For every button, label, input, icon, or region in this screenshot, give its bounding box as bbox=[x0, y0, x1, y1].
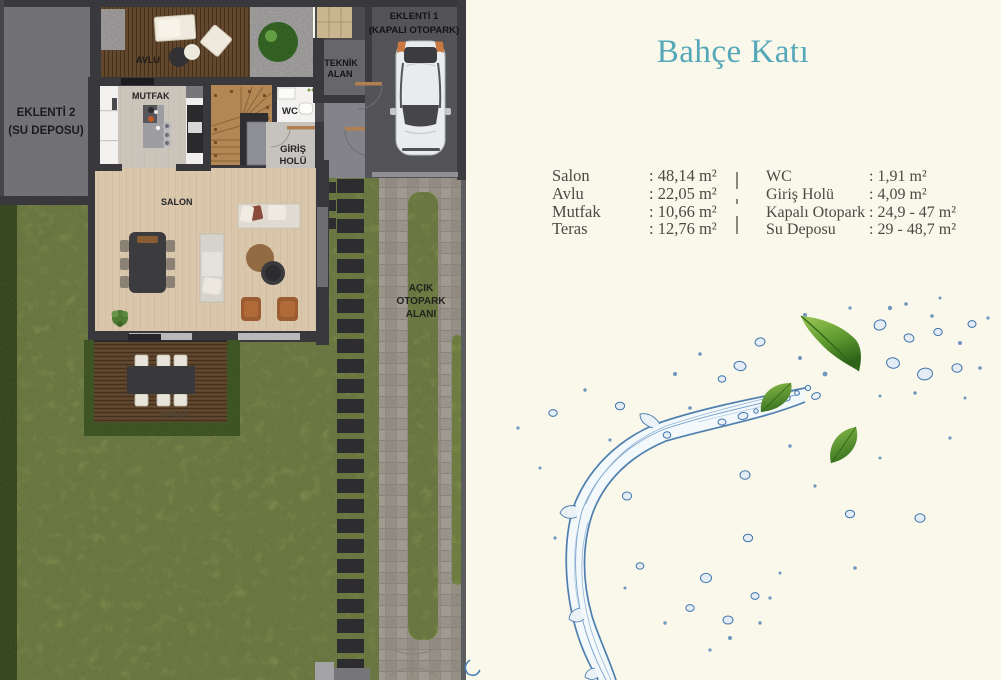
svg-text:ALAN: ALAN bbox=[328, 69, 353, 79]
svg-text:OTOPARK: OTOPARK bbox=[396, 296, 446, 307]
svg-text:EKLENTİ 2: EKLENTİ 2 bbox=[17, 106, 76, 119]
svg-text:AVLU: AVLU bbox=[136, 55, 160, 65]
svg-text:(SU DEPOSU): (SU DEPOSU) bbox=[8, 125, 84, 137]
svg-text:GİRİŞ: GİRİŞ bbox=[280, 144, 306, 155]
svg-text:(KAPALI OTOPARK): (KAPALI OTOPARK) bbox=[369, 25, 459, 36]
svg-text:SALON: SALON bbox=[161, 197, 193, 207]
svg-text:TERAS: TERAS bbox=[161, 411, 189, 420]
svg-text:TEKNİK: TEKNİK bbox=[324, 58, 358, 68]
svg-text:MUTFAK: MUTFAK bbox=[132, 91, 170, 101]
svg-text:EKLENTİ 1: EKLENTİ 1 bbox=[390, 11, 439, 22]
svg-text:WC: WC bbox=[282, 106, 298, 117]
svg-text:AÇIK: AÇIK bbox=[409, 283, 434, 294]
svg-text:HOLÜ: HOLÜ bbox=[280, 156, 307, 167]
svg-text:ALANI: ALANI bbox=[406, 309, 437, 320]
